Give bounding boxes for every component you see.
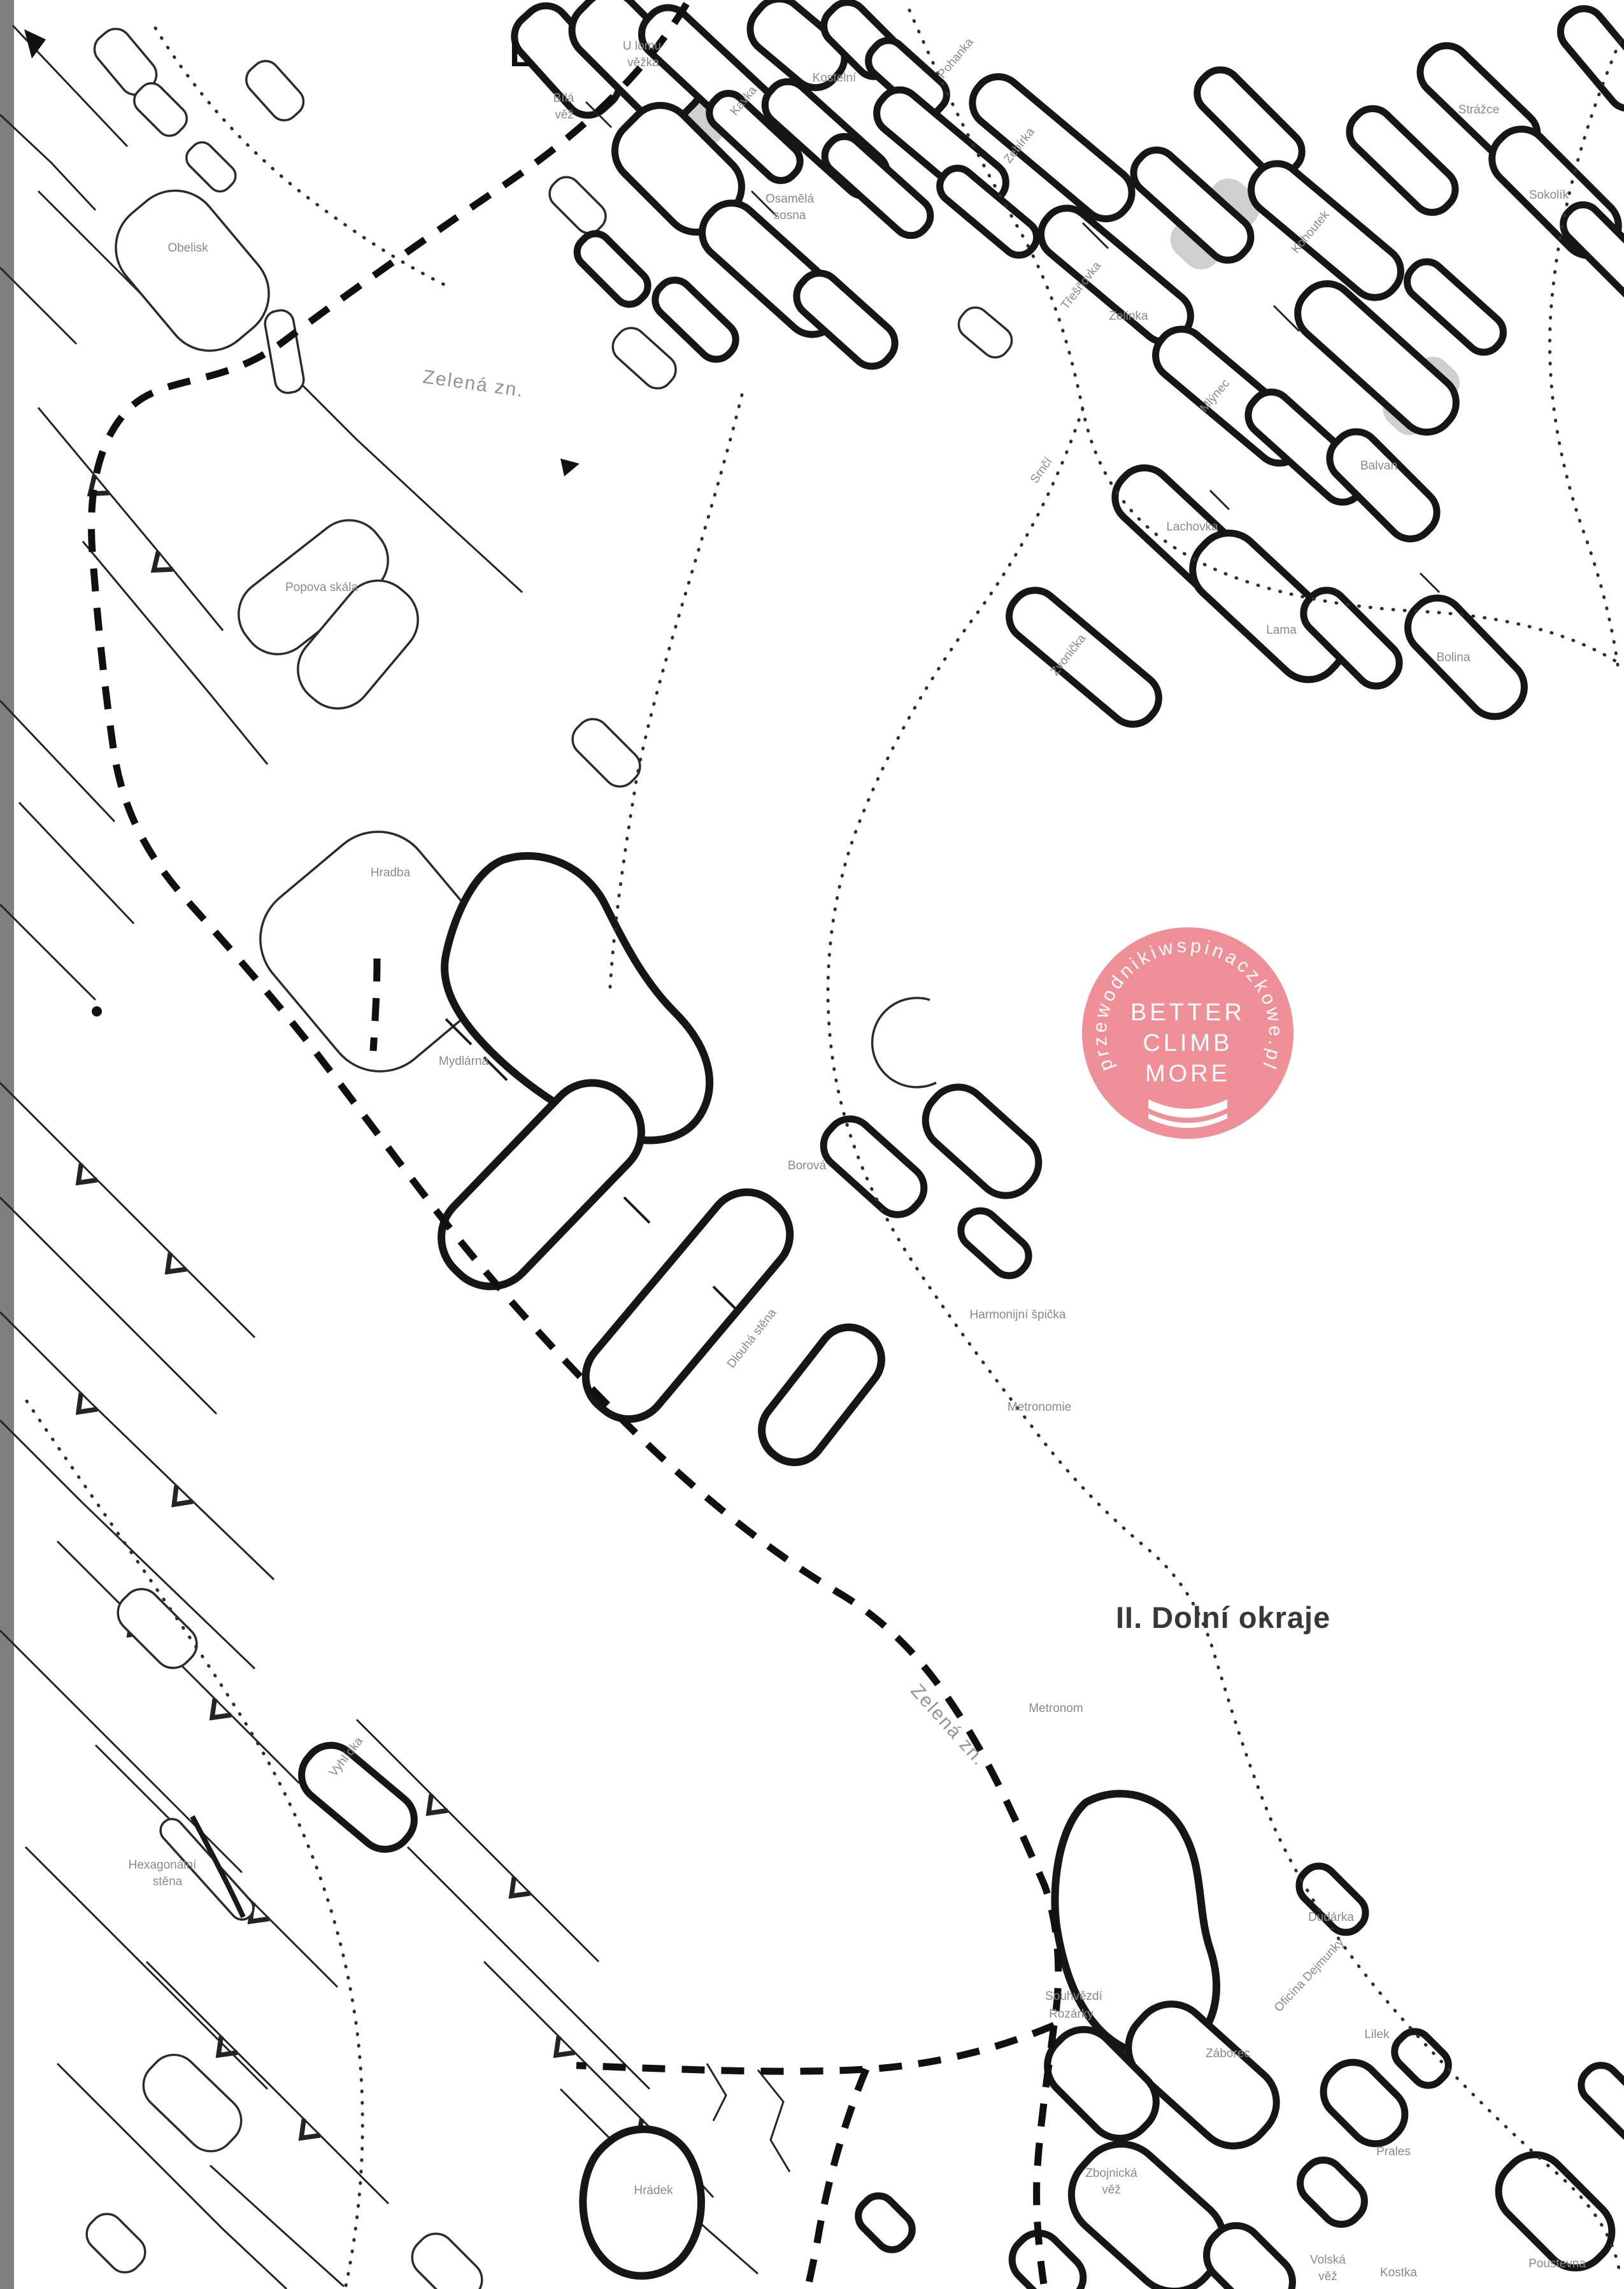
- rock-label: Prales: [1376, 2145, 1411, 2158]
- rock-outline: [544, 171, 611, 239]
- rock-outline: [851, 2189, 919, 2257]
- rock-label: Kostka: [1380, 2266, 1418, 2279]
- rock-label: Mydlárna: [439, 1055, 489, 1068]
- cliff-line: [0, 115, 96, 210]
- rock-outline: [110, 1581, 204, 1676]
- badge-line-2: CLIMB: [1143, 1030, 1232, 1057]
- cliff-line: [0, 904, 96, 1000]
- rock-outline: [873, 998, 936, 1087]
- bold-rocks-bottom: [583, 1793, 1624, 2289]
- rock-outline: [1388, 2025, 1455, 2092]
- rock-outline: [1552, 1, 1624, 117]
- cliff-line: [210, 2165, 344, 2286]
- cliff-line: [0, 1197, 217, 1414]
- rock-outline: [263, 308, 306, 395]
- rock-label: Záborec: [1206, 2047, 1250, 2060]
- rock-outline: [97, 173, 287, 369]
- rock-label: Pohanka: [936, 36, 977, 81]
- boundary-path: [610, 395, 742, 987]
- rock-outline: [750, 1315, 894, 1475]
- cliff-line: [0, 267, 76, 344]
- rock-outline: [953, 302, 1017, 363]
- rock-label: U lomu: [623, 39, 661, 53]
- rock-outline: [182, 138, 240, 196]
- rock-label: Strážce: [1458, 103, 1499, 117]
- rock-label: Borová: [788, 1159, 827, 1173]
- rock-label: Harmonijní špička: [970, 1308, 1066, 1322]
- cliff-line: [0, 1083, 255, 1337]
- rock-label: Poustevna: [1528, 2257, 1586, 2271]
- map-shape: [1420, 573, 1439, 592]
- cliff-line: [0, 701, 115, 822]
- cliff-line: [408, 1847, 650, 2089]
- rock-outline: [423, 1064, 660, 1305]
- rock-outline: [571, 227, 654, 311]
- rock-outline: [1341, 100, 1464, 220]
- rock-label: Dudárka: [1308, 1911, 1354, 1924]
- map-shape: [1210, 490, 1229, 510]
- rock-label: Hrádek: [634, 2184, 673, 2197]
- rock-label: věž: [1318, 2270, 1337, 2283]
- rock-label: věž: [555, 108, 574, 122]
- rock-outline: [1292, 2151, 1372, 2232]
- cliff-line: [758, 2070, 790, 2172]
- rock-outline: [404, 2226, 490, 2289]
- rock-outline: [583, 2129, 701, 2276]
- boundary-path: [1549, 41, 1620, 674]
- rock-outline: [1002, 2223, 1092, 2289]
- rock-label: Popova skála: [285, 581, 359, 594]
- rock-label: Bolina: [1437, 651, 1471, 664]
- rock-label: Hexagonální: [129, 1858, 197, 1872]
- region-title: II. Dolní okraje: [1116, 1601, 1330, 1634]
- rock-outline: [570, 1176, 806, 1434]
- rock-label: Volská: [1310, 2253, 1346, 2267]
- rock-label: Metronom: [1029, 1702, 1083, 1715]
- rock-outline: [1400, 254, 1511, 359]
- rock-label: Bílá: [553, 92, 574, 105]
- rock-outline: [1574, 2058, 1624, 2148]
- rock-outline: [241, 55, 310, 126]
- rock-outline: [814, 1109, 933, 1224]
- rock-outline: [606, 322, 682, 394]
- trail-label: Zelená zn.: [906, 1680, 990, 1770]
- cliff-line: [38, 408, 223, 631]
- rock-label: sosna: [774, 209, 806, 222]
- rock-label: stěna: [153, 1875, 183, 1888]
- rock-outline: [953, 1204, 1036, 1283]
- rock-outline: [134, 2045, 252, 2162]
- rock-label: věžka: [627, 56, 659, 69]
- trail-label: Zelená zn.: [422, 366, 525, 401]
- rock-label: věž: [1102, 2183, 1121, 2197]
- dot-mark: [92, 1006, 102, 1016]
- rock-label: Metronomie: [1008, 1401, 1071, 1414]
- rock-label: Souhvězdí: [1045, 1990, 1103, 2003]
- rock-label: Osamělá: [766, 192, 814, 206]
- rock-label: Srnčí: [1028, 455, 1055, 486]
- rock-label: Lachovka: [1166, 520, 1218, 534]
- rock-label: Kostelní: [813, 71, 857, 85]
- trail-path: [808, 2069, 866, 2289]
- rock-outline: [913, 1075, 1051, 1208]
- map-shape: [624, 1197, 650, 1223]
- rock-label: Lilek: [1364, 2028, 1390, 2041]
- sector-marker-L: L: [509, 33, 532, 75]
- badge-line-3: MORE: [1145, 1060, 1230, 1087]
- rock-label: Zelinka: [1109, 310, 1148, 323]
- badge: przewodnikiwspinaczkowe.pl BETTER CLIMB …: [1082, 927, 1293, 1139]
- trail-path: [576, 2025, 1054, 2071]
- cliff-line: [19, 802, 134, 923]
- rock-label: Obelisk: [167, 241, 208, 255]
- rock-label: Sokolík: [1529, 189, 1569, 202]
- rock-label: Zbojnická: [1085, 2167, 1137, 2180]
- rock-outline: [290, 1734, 425, 1860]
- arrow-mark: [560, 459, 580, 476]
- badge-line-1: BETTER: [1130, 999, 1245, 1026]
- rock-label: Oficína Dejmunky: [1272, 1936, 1347, 2014]
- rock-label: Balvan: [1360, 459, 1397, 473]
- cliff-line: [0, 1630, 242, 1872]
- rock-label: Rozárky: [1049, 2007, 1093, 2021]
- climbing-map: ObeliskPopova skálaU lomuvěžkaBílávěžKav…: [0, 0, 1624, 2289]
- cliff-line: [0, 1312, 274, 1579]
- rock-label: Hradba: [371, 866, 411, 880]
- rock-outline: [999, 580, 1169, 734]
- corner-mark: [24, 29, 46, 59]
- rock-label: Lama: [1266, 624, 1297, 637]
- rock-outline: [80, 2207, 152, 2279]
- map-page: ObeliskPopova skálaU lomuvěžkaBílávěžKav…: [0, 0, 1624, 2289]
